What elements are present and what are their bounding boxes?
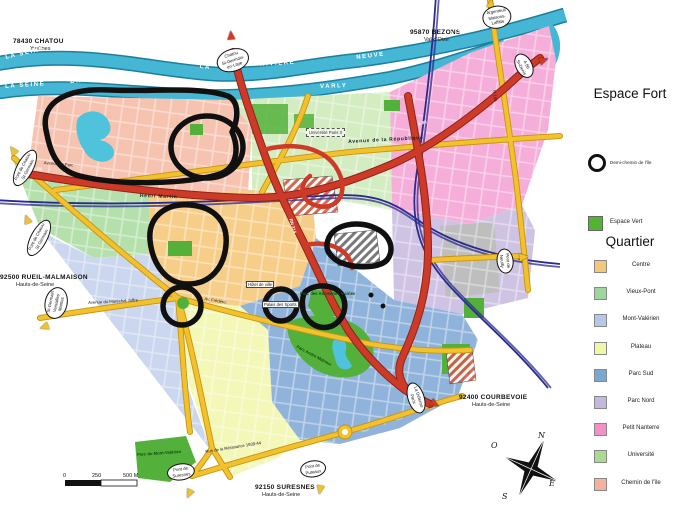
compass-rose: N O E S xyxy=(491,431,555,501)
legend-item-universit-: Université xyxy=(582,450,678,462)
legend-item-mont-val-rien: Mont-Valérien xyxy=(582,314,678,326)
legend-item-espace-vert: Espace Vert xyxy=(582,216,678,230)
scale-250: 250 xyxy=(92,473,101,479)
place-de-la-boule-green xyxy=(177,297,189,309)
legend-item-parc-nord: Parc Nord xyxy=(582,396,678,408)
scale-500: 500 M xyxy=(123,473,139,479)
espace-vert-swatch xyxy=(588,216,603,231)
legend-item-parc-sud: Parc Sud xyxy=(582,369,678,381)
sign-arrow-icon xyxy=(315,485,324,495)
legend-label-espace-vert: Espace Vert xyxy=(610,219,642,225)
legend-item-vieux-pont: Vieux-Pont xyxy=(582,287,678,299)
quartier-label: Mont-Valérien xyxy=(606,316,676,322)
quartier-label: Centre xyxy=(606,262,676,268)
quartier-label: Petit Nanterre xyxy=(606,425,676,431)
compass-n: N xyxy=(537,431,546,440)
sign-arrow-icon xyxy=(519,253,529,262)
quartier-label: Université xyxy=(606,452,676,458)
legend-item-plateau: Plateau xyxy=(582,342,678,354)
quartier-label: Chemin de l'île xyxy=(606,480,676,486)
map-canvas: 0 250 500 M N O E S xyxy=(0,0,678,512)
quartier-label: Plateau xyxy=(606,344,676,350)
legend-label-fort: Demi-chemin de l'île xyxy=(610,160,651,165)
scale-bar: 0 250 500 M xyxy=(63,473,139,486)
compass-s: S xyxy=(502,492,508,501)
map-page: 0 250 500 M N O E S Espace Fort Demi-che… xyxy=(0,0,678,512)
sign-arrow-icon xyxy=(227,30,236,40)
quartier-label: Parc Nord xyxy=(606,398,676,404)
map-legend: Espace Fort Demi-chemin de l'île Espace … xyxy=(582,84,678,512)
quartier-label: Parc Sud xyxy=(606,371,676,377)
scale-0: 0 xyxy=(63,473,66,479)
compass-o: O xyxy=(491,441,498,450)
road-sign-line: Puteaux xyxy=(305,468,321,476)
legend-item-centre: Centre xyxy=(582,260,678,272)
quartier-label: Vieux-Pont xyxy=(606,289,676,295)
legend-item-petit-nanterre: Petit Nanterre xyxy=(582,423,678,435)
road-sign-line: Pont de xyxy=(504,253,511,268)
legend-item-chemin-de-l-le: Chemin de l'île xyxy=(582,478,678,490)
fort-circle-icon xyxy=(588,154,606,172)
legend-item-fort: Demi-chemin de l'île xyxy=(582,154,678,172)
legend-title-quartier: Quartier xyxy=(582,234,678,249)
compass-e: E xyxy=(548,479,555,488)
legend-title-espace-fort: Espace Fort xyxy=(582,86,678,101)
